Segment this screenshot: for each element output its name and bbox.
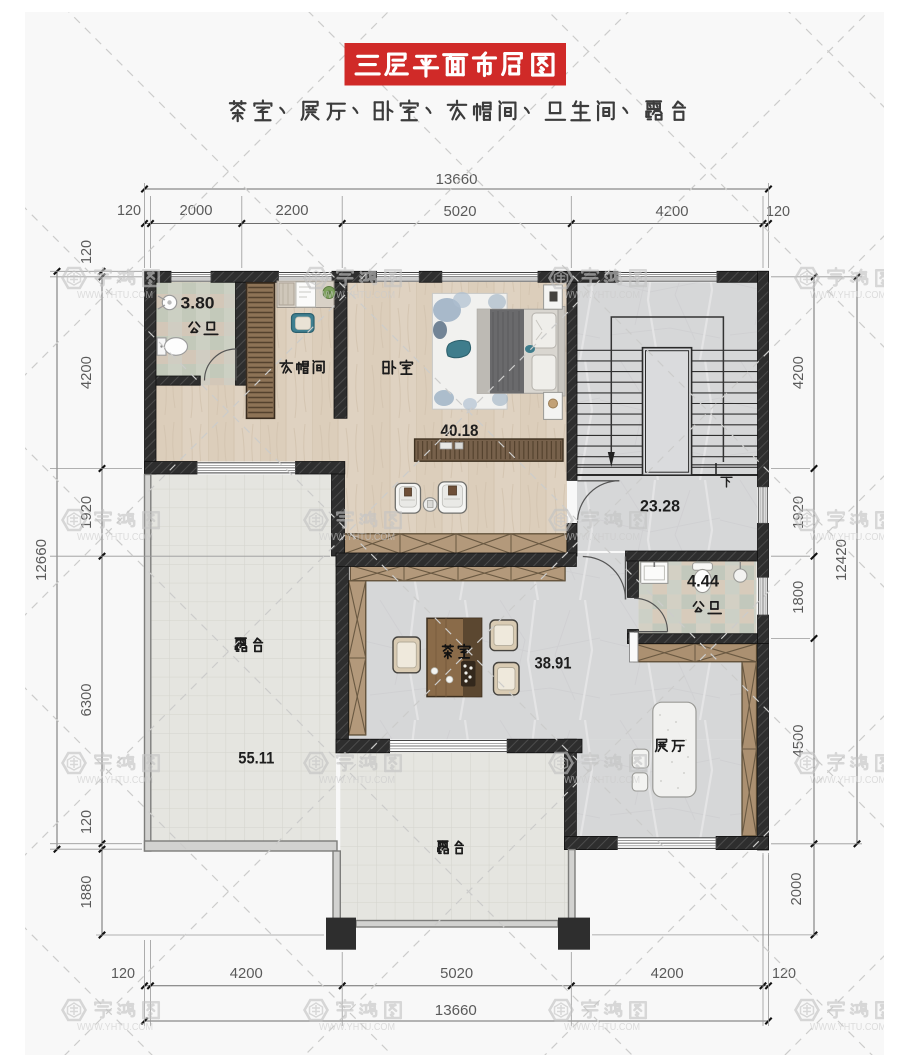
svg-text:3.80: 3.80 <box>181 294 215 313</box>
svg-text:WWW.YHTU.COM: WWW.YHTU.COM <box>77 1022 153 1033</box>
svg-text:4200: 4200 <box>651 966 684 982</box>
svg-text:6300: 6300 <box>79 684 95 717</box>
svg-text:WWW.YHTU.COM: WWW.YHTU.COM <box>564 290 640 301</box>
svg-text:4200: 4200 <box>656 204 689 220</box>
svg-text:WWW.YHTU.COM: WWW.YHTU.COM <box>319 775 395 786</box>
svg-text:120: 120 <box>111 966 135 982</box>
svg-text:13660: 13660 <box>435 1002 477 1019</box>
svg-text:WWW.YHTU.COM: WWW.YHTU.COM <box>77 290 153 301</box>
svg-text:WWW.YHTU.COM: WWW.YHTU.COM <box>319 532 395 543</box>
svg-text:4.44: 4.44 <box>687 572 720 591</box>
svg-text:120: 120 <box>772 966 796 982</box>
svg-text:WWW.YHTU.COM: WWW.YHTU.COM <box>810 532 886 543</box>
svg-text:2000: 2000 <box>789 873 805 906</box>
svg-text:12660: 12660 <box>33 539 50 581</box>
svg-text:2000: 2000 <box>180 203 213 219</box>
svg-text:38.91: 38.91 <box>535 654 572 673</box>
svg-text:WWW.YHTU.COM: WWW.YHTU.COM <box>77 775 153 786</box>
svg-text:WWW.YHTU.COM: WWW.YHTU.COM <box>564 532 640 543</box>
svg-text:WWW.YHTU.COM: WWW.YHTU.COM <box>564 775 640 786</box>
svg-text:55.11: 55.11 <box>238 749 274 768</box>
svg-text:40.18: 40.18 <box>441 421 479 440</box>
svg-text:120: 120 <box>117 203 141 219</box>
svg-text:4200: 4200 <box>79 356 95 389</box>
svg-text:1800: 1800 <box>791 581 807 614</box>
svg-text:WWW.YHTU.COM: WWW.YHTU.COM <box>77 532 153 543</box>
svg-text:4200: 4200 <box>230 966 263 982</box>
svg-text:2200: 2200 <box>276 203 309 219</box>
svg-text:WWW.YHTU.COM: WWW.YHTU.COM <box>810 1022 886 1033</box>
svg-text:WWW.YHTU.COM: WWW.YHTU.COM <box>319 1022 395 1033</box>
svg-text:5020: 5020 <box>444 204 477 220</box>
svg-text:5020: 5020 <box>440 966 473 982</box>
svg-text:WWW.YHTU.COM: WWW.YHTU.COM <box>810 775 886 786</box>
svg-text:WWW.YHTU.COM: WWW.YHTU.COM <box>564 1022 640 1033</box>
svg-text:WWW.YHTU.COM: WWW.YHTU.COM <box>810 290 886 301</box>
svg-text:1880: 1880 <box>79 876 95 909</box>
svg-text:4200: 4200 <box>791 356 807 389</box>
svg-text:120: 120 <box>79 240 95 264</box>
svg-text:WWW.YHTU.COM: WWW.YHTU.COM <box>319 290 395 301</box>
svg-text:120: 120 <box>79 810 95 834</box>
svg-text:120: 120 <box>766 204 790 220</box>
